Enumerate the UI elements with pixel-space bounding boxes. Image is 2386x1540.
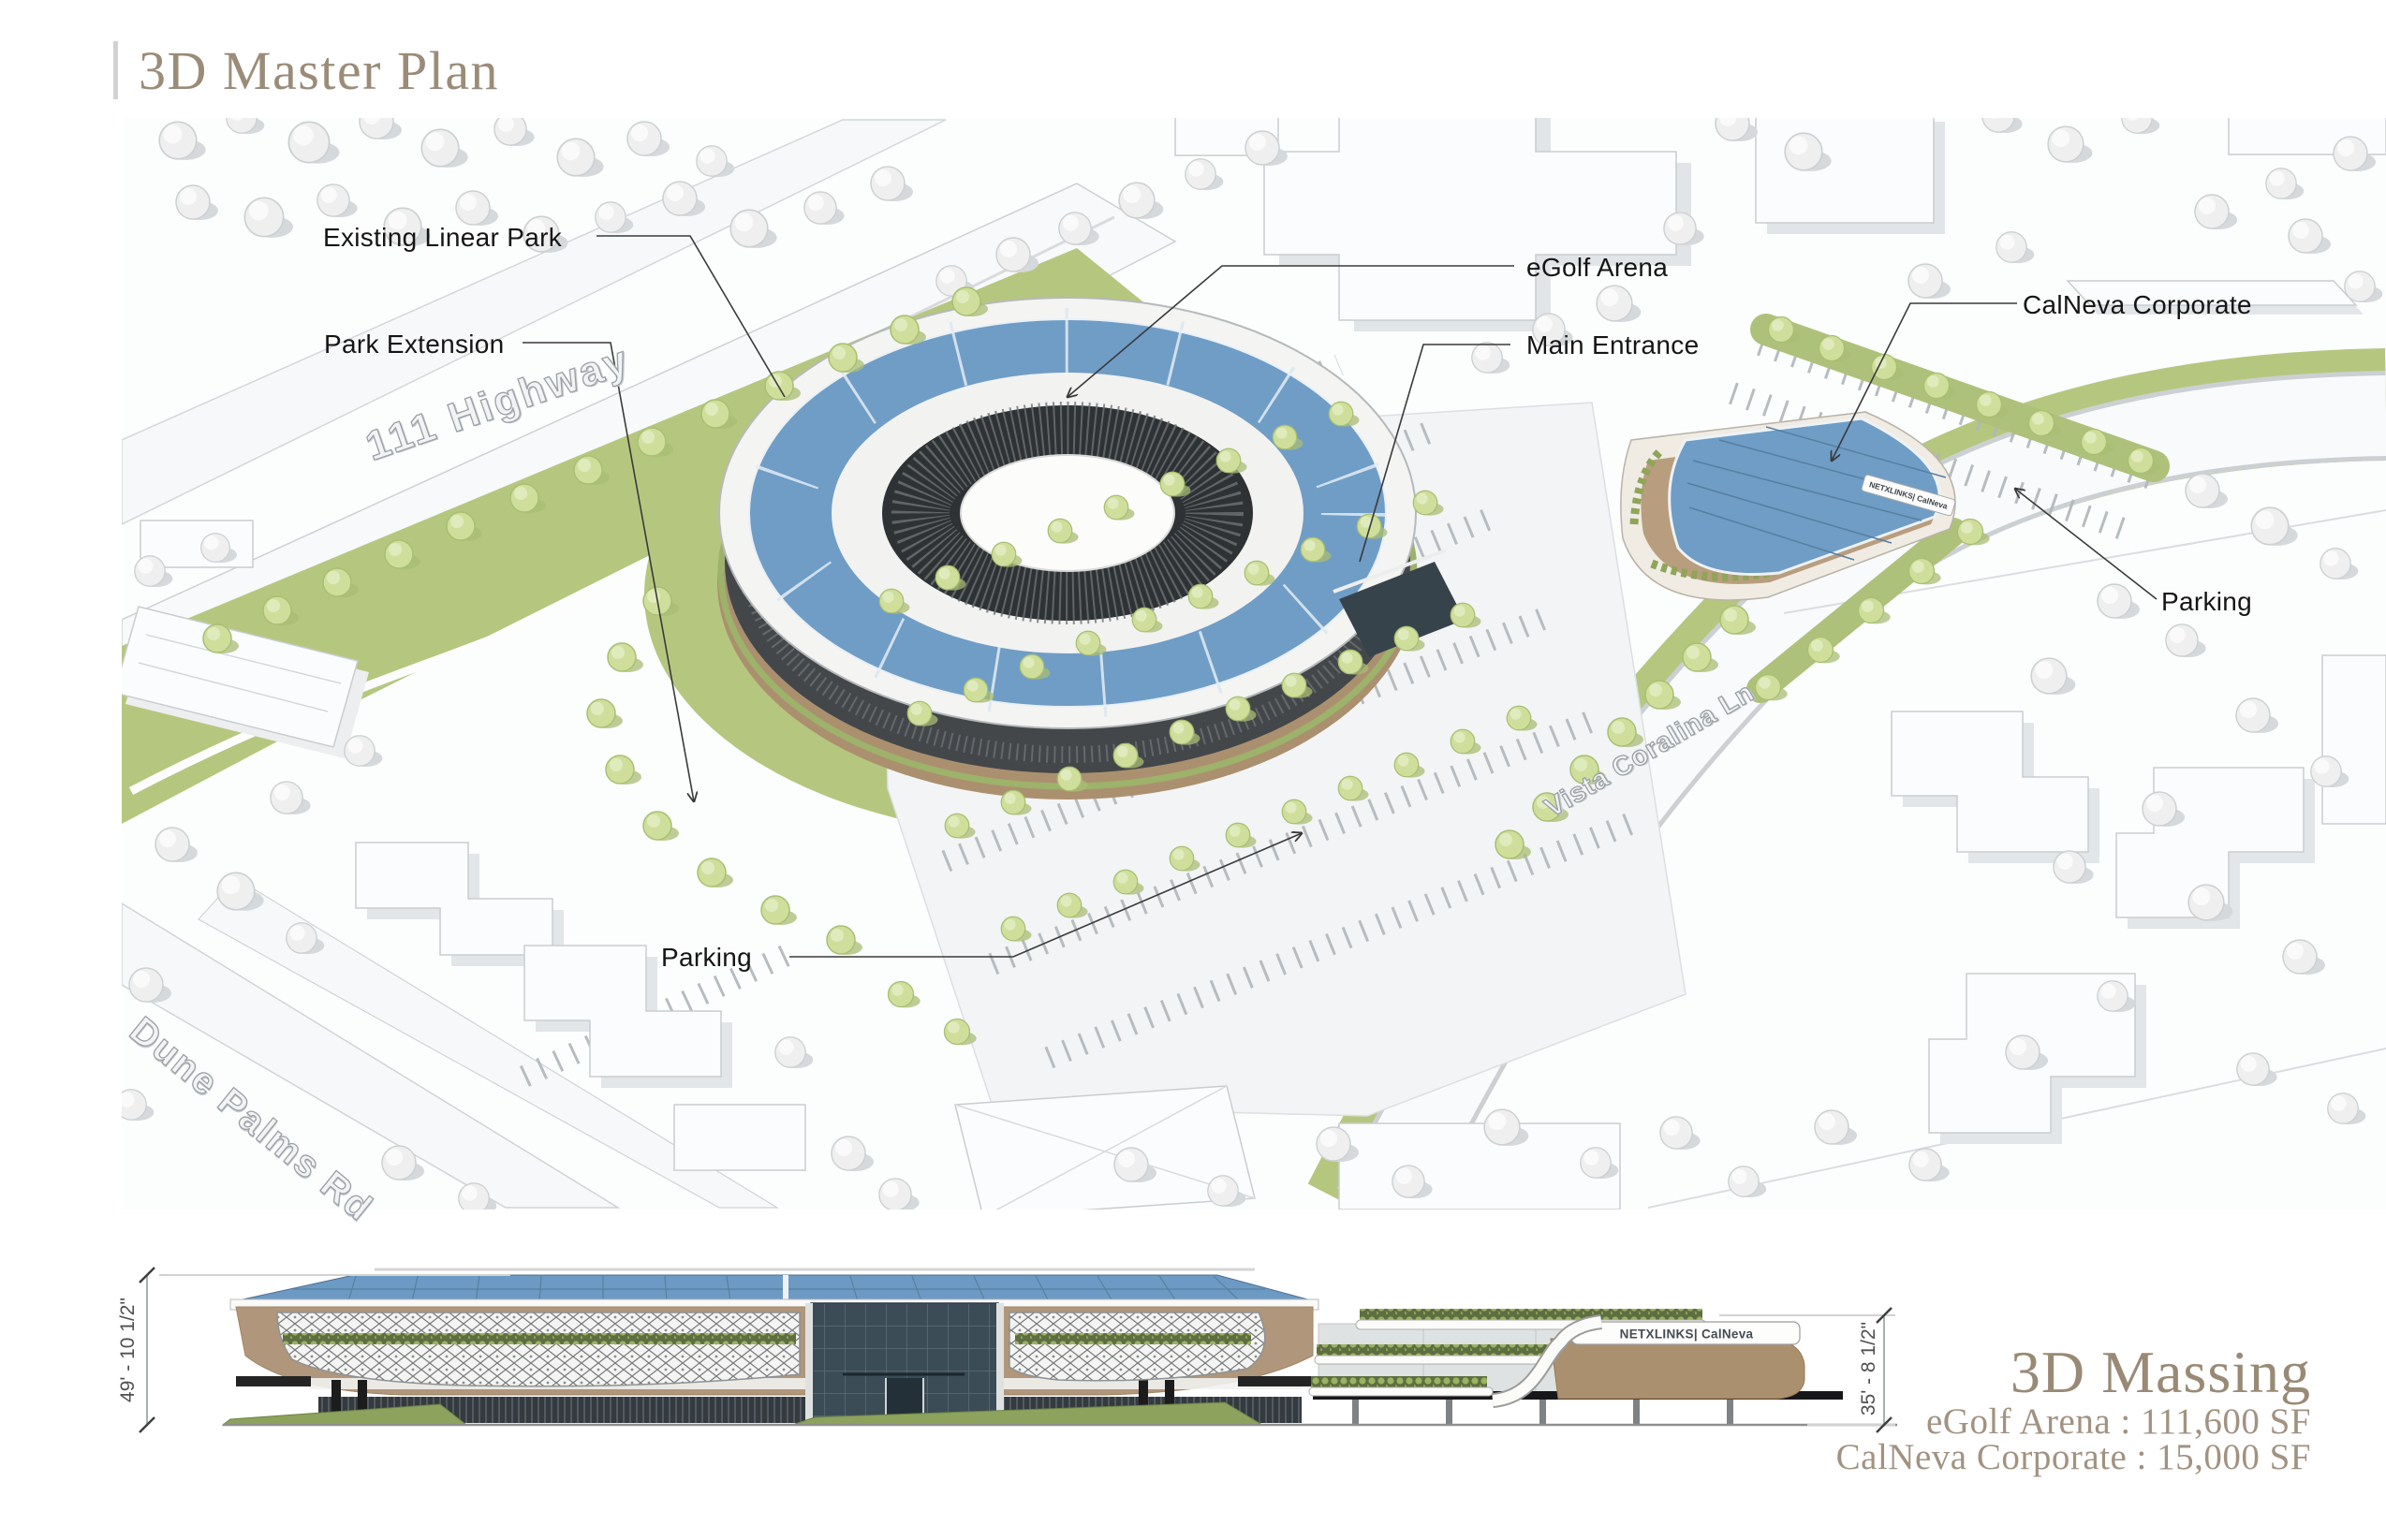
master-plan-slide: { "title": "3D Master Plan", "labels": {… — [0, 0, 2386, 1540]
massing-egolf-area: eGolf Arena : 111,600 SF — [1926, 1403, 2311, 1440]
calneva-elev-columns — [1352, 1400, 1733, 1425]
label-park-extension: Park Extension — [324, 330, 505, 359]
dimension-arena-height: 49' - 10 1/2" — [117, 1298, 140, 1402]
calneva-elev-roof-shrubs — [1360, 1309, 1702, 1321]
label-calneva-corporate: CalNeva Corporate — [2023, 290, 2252, 320]
massing-title: 3D Massing — [2010, 1342, 2311, 1402]
calneva-elevation — [1309, 1309, 1843, 1425]
title-accent-bar — [113, 41, 118, 99]
label-main-entrance: Main Entrance — [1526, 330, 1699, 360]
label-parking-right: Parking — [2161, 587, 2252, 617]
arena-elev-mesh-right — [1009, 1313, 1265, 1381]
label-egolf-arena: eGolf Arena — [1526, 253, 1668, 283]
arena-elev-mesh-left — [277, 1313, 800, 1386]
label-parking-left: Parking — [661, 943, 752, 973]
massing-calneva-area: CalNeva Corporate : 15,000 SF — [1836, 1439, 2311, 1475]
netxlinks-sign-elevation: NETXLINKS| CalNeva — [1620, 1327, 1754, 1342]
page-title: 3D Master Plan — [139, 39, 499, 102]
site-plan-render — [114, 86, 2386, 1217]
calneva-elev-tan-wall — [1551, 1339, 1804, 1399]
arena-elevation — [223, 1269, 1318, 1425]
dimension-calneva-height: 35' - 8 1/2" — [1858, 1322, 1880, 1415]
label-existing-linear-park: Existing Linear Park — [323, 223, 562, 253]
